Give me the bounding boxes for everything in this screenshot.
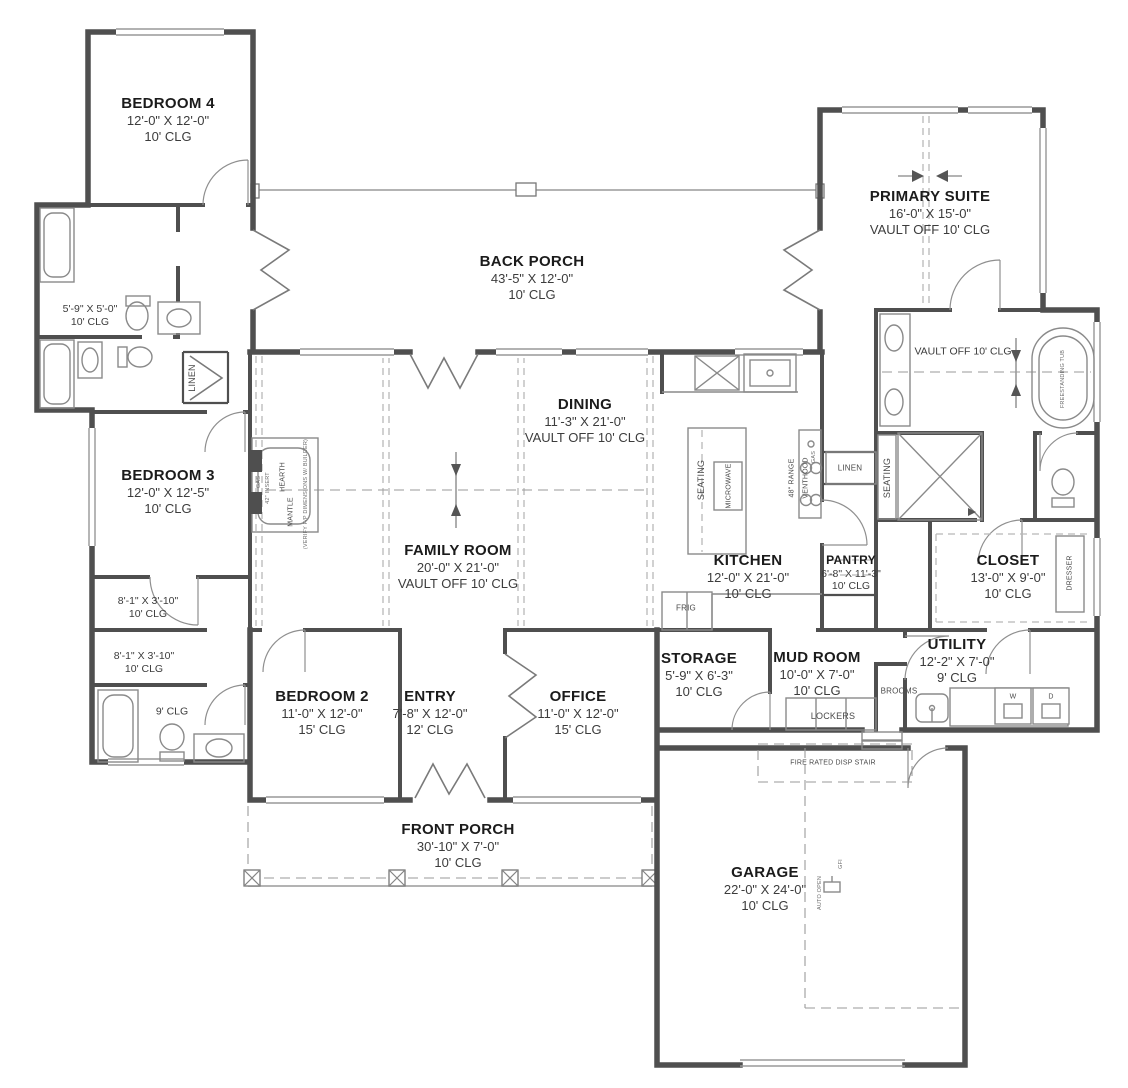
utility-sink-icon <box>916 694 948 722</box>
room-label-storage: STORAGE 5'-9" X 6'-3" 10' CLG <box>661 650 737 700</box>
back-porch-edge <box>251 183 824 198</box>
room-dims: 12'-0" X 12'-0" <box>121 113 215 129</box>
room-label-entry: ENTRY 7'-8" X 12'-0" 12' CLG <box>393 688 468 738</box>
room-label-garage: GARAGE 22'-0" X 24'-0" 10' CLG <box>724 864 806 914</box>
label-dryer: D <box>1048 694 1053 701</box>
room-name: BEDROOM 4 <box>121 95 215 113</box>
label-dresser: DRESSER <box>1067 555 1074 590</box>
shower-icon <box>898 433 982 520</box>
room-label-bedroom-4: BEDROOM 4 12'-0" X 12'-0" 10' CLG <box>121 95 215 145</box>
label-linen: LINEN <box>187 364 197 392</box>
exterior-walls <box>37 32 1097 1065</box>
room-label-bath: 5'-9" X 5'-0" 10' CLG <box>63 303 118 329</box>
label-gas: GAS <box>811 451 817 463</box>
floor-plan: BEDROOM 4 12'-0" X 12'-0" 10' CLG 5'-9" … <box>0 0 1128 1088</box>
label-insert-size: 42" INSERT <box>265 472 271 504</box>
toilet-icon <box>160 724 184 761</box>
room-label-mud-room: MUD ROOM 10'-0" X 7'-0" 10' CLG <box>773 649 860 699</box>
toilet-icon <box>1052 469 1074 507</box>
label-frig: FRIG <box>676 604 696 613</box>
bathtub-icon <box>98 690 138 762</box>
room-label-primary-bath: VAULT OFF 10' CLG <box>914 346 1011 359</box>
room-label-office: OFFICE 11'-0" X 12'-0" 15' CLG <box>537 688 618 738</box>
label-brooms: BROOMS <box>881 687 918 696</box>
room-label-back-porch: BACK PORCH 43'-5" X 12'-0" 10' CLG <box>480 253 585 303</box>
room-label-family-room: FAMILY ROOM 20'-0" X 21'-0" VAULT OFF 10… <box>398 542 518 592</box>
room-label-pantry: PANTRY 6'-8" X 11'-3" 10' CLG <box>821 553 881 593</box>
label-hearth: HEARTH <box>280 462 287 492</box>
label-auto-open: AUTO OPEN <box>817 876 823 910</box>
room-label-utility: UTILITY 12'-2" X 7'-0" 9' CLG <box>920 636 995 686</box>
room-label-hall-1: 8'-1" X 3'-10" 10' CLG <box>118 595 179 621</box>
kitchen-sink-icon <box>744 354 796 392</box>
floor-plan-linework <box>0 0 1128 1088</box>
label-range: 48" RANGE <box>789 459 796 498</box>
label-mantle: MANTLE <box>288 497 295 527</box>
room-label-kitchen: KITCHEN 12'-0" X 21'-0" 10' CLG <box>707 552 789 602</box>
label-freestanding-tub: FREESTANDING TUB <box>1060 350 1066 408</box>
porch-column-icon <box>502 870 518 886</box>
label-microwave: MICROWAVE <box>726 464 733 509</box>
toilet-icon <box>126 296 150 330</box>
dishwasher-icon <box>695 356 739 390</box>
sink-icon <box>158 302 200 334</box>
porch-column-icon <box>244 870 260 886</box>
label-lockers: LOCKERS <box>811 711 855 721</box>
room-label-closet: CLOSET 13'-0" X 9'-0" 10' CLG <box>971 552 1046 602</box>
room-label-hall-2: 8'-1" X 3'-10" 10' CLG <box>114 650 175 676</box>
bathtub-icon <box>40 340 74 408</box>
room-label-bedroom-3: BEDROOM 3 12'-0" X 12'-5" 10' CLG <box>121 467 215 517</box>
sink-icon <box>194 734 244 762</box>
room-label-bath-9clg: 9' CLG <box>156 706 188 719</box>
label-fire-rated-stair: FIRE RATED DISP STAIR <box>790 760 876 767</box>
label-seating: SEATING <box>696 460 706 500</box>
label-linen: LINEN <box>838 464 863 473</box>
porch-column-icon <box>389 870 405 886</box>
room-label-primary-suite: PRIMARY SUITE 16'-0" X 15'-0" VAULT OFF … <box>870 188 991 238</box>
label-gas-insert: GAS <box>256 476 262 488</box>
room-label-bedroom-2: BEDROOM 2 11'-0" X 12'-0" 15' CLG <box>275 688 369 738</box>
toilet-icon <box>118 347 152 367</box>
label-venthood: VENTHOOD <box>803 457 810 498</box>
bathtub-icon <box>40 208 74 282</box>
label-washer: W <box>1010 694 1017 701</box>
room-ceiling: 10' CLG <box>121 129 215 145</box>
label-seating: SEATING <box>882 458 892 498</box>
label-gfi: GFI <box>838 859 844 869</box>
label-verify-fp: (VERIFY F/P DIMENSIONS W/ BUILDER) <box>303 439 309 549</box>
vanity-double-sink <box>880 314 910 426</box>
garage-opener-icon <box>824 876 840 892</box>
room-label-dining: DINING 11'-3" X 21'-0" VAULT OFF 10' CLG <box>525 396 645 446</box>
room-label-front-porch: FRONT PORCH 30'-10" X 7'-0" 10' CLG <box>401 821 514 871</box>
sink-icon <box>78 342 102 378</box>
